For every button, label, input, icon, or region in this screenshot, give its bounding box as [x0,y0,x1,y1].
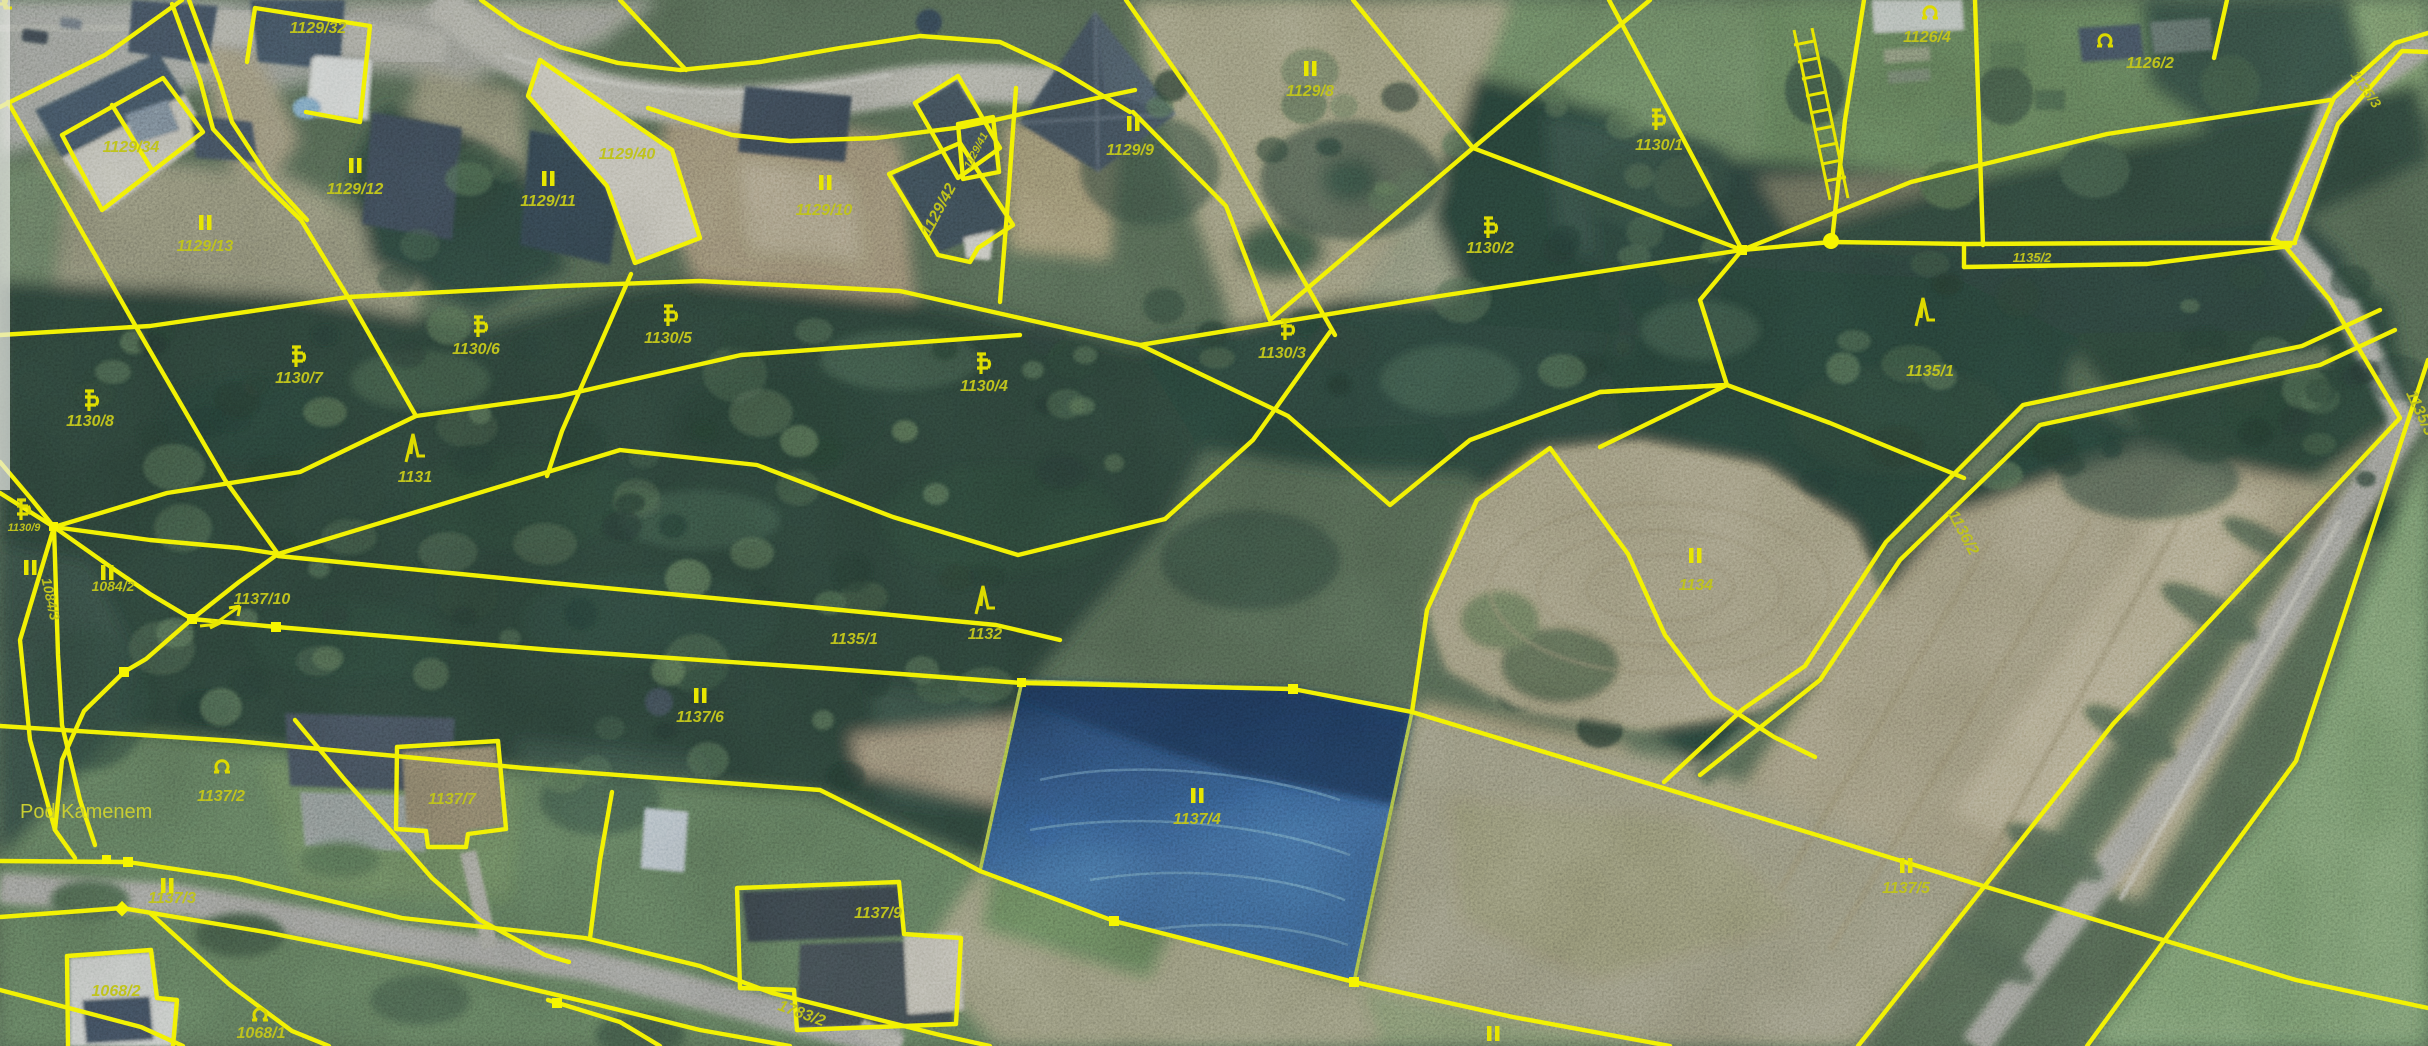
svg-text:1129/12: 1129/12 [327,181,384,198]
svg-text:1130/8: 1130/8 [66,413,114,430]
svg-text:1130/6: 1130/6 [452,341,500,358]
svg-text:1130/2: 1130/2 [1466,240,1514,257]
svg-text:1129/32: 1129/32 [290,20,347,37]
svg-text:Pod Kamenem: Pod Kamenem [20,801,152,823]
svg-text:1132: 1132 [968,626,1003,643]
svg-text:1137/9: 1137/9 [854,905,902,922]
svg-text:1137/2: 1137/2 [197,788,245,805]
svg-text:1126/2: 1126/2 [2126,55,2174,72]
svg-text:1137/7: 1137/7 [428,791,477,808]
svg-text:1137/5: 1137/5 [1882,880,1931,897]
svg-text:1135/1: 1135/1 [1906,363,1954,380]
svg-text:1131: 1131 [398,469,433,486]
svg-text:1126/4: 1126/4 [1903,29,1951,46]
svg-text:1129/8: 1129/8 [1286,83,1334,100]
svg-text:1129/13: 1129/13 [177,238,234,255]
svg-text:1129/40: 1129/40 [599,146,656,163]
svg-text:1068/1: 1068/1 [237,1025,286,1042]
svg-text:1084/2: 1084/2 [92,578,135,594]
svg-text:1135/1: 1135/1 [830,631,878,648]
svg-text:1134: 1134 [1679,577,1714,594]
svg-text:1130/1: 1130/1 [1635,137,1683,154]
svg-text:1129/9: 1129/9 [1106,142,1154,159]
svg-text:1129/11: 1129/11 [520,193,576,210]
svg-text:1130/9: 1130/9 [8,522,42,534]
svg-text:1130/4: 1130/4 [960,378,1008,395]
svg-text:1137/6: 1137/6 [676,709,724,726]
svg-text:1130/7: 1130/7 [275,370,324,387]
svg-text:1129/10: 1129/10 [796,202,853,219]
svg-text:1137/4: 1137/4 [1173,811,1221,828]
svg-text:1129/34: 1129/34 [103,139,160,156]
svg-text:1130/5: 1130/5 [644,330,693,347]
svg-text:1135/2: 1135/2 [2013,250,2053,265]
svg-text:1130/3: 1130/3 [1258,345,1306,362]
svg-text:1137/10: 1137/10 [234,591,291,608]
svg-text:1068/2: 1068/2 [92,983,141,1000]
